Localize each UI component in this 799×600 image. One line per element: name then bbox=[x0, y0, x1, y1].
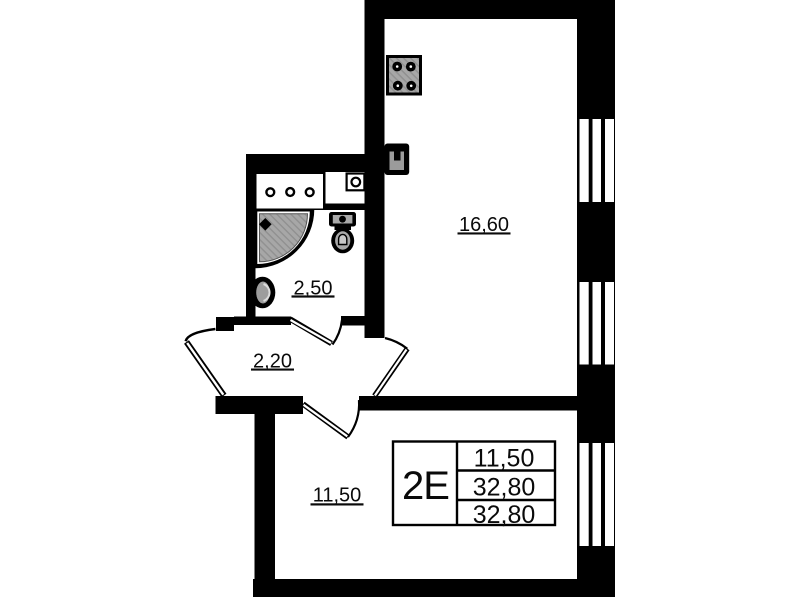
svg-text:32,80: 32,80 bbox=[473, 501, 536, 529]
svg-text:32,80: 32,80 bbox=[473, 474, 536, 502]
svg-text:2E: 2E bbox=[402, 464, 449, 508]
svg-text:11,50: 11,50 bbox=[474, 445, 535, 473]
svg-text:11,50: 11,50 bbox=[313, 485, 362, 507]
